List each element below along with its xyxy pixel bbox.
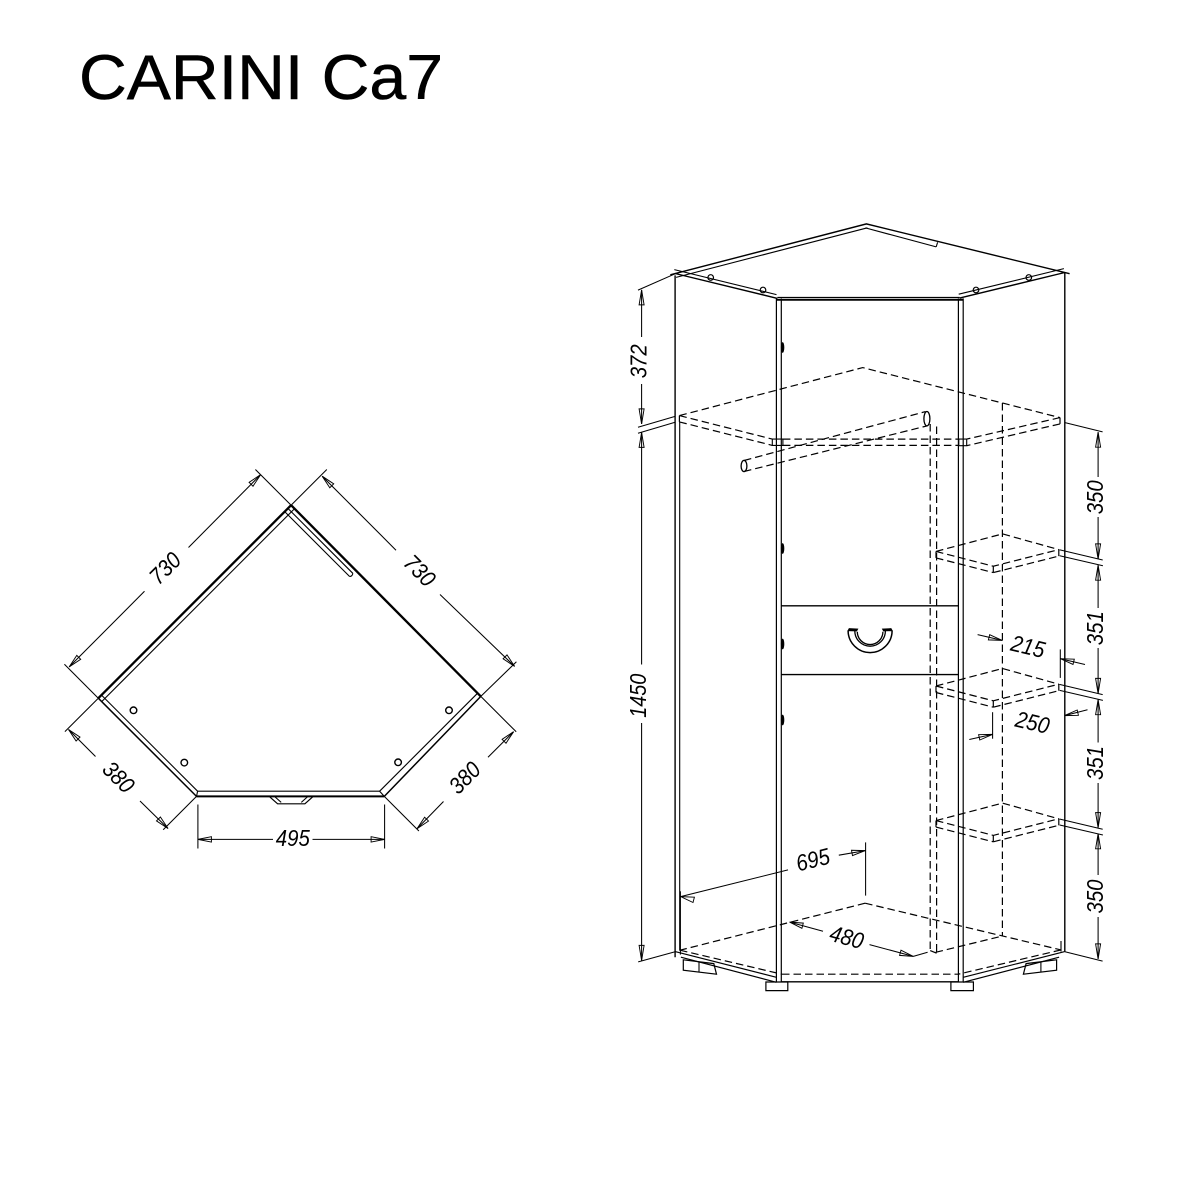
svg-text:350: 350 bbox=[1082, 879, 1108, 913]
svg-text:350: 350 bbox=[1082, 480, 1108, 514]
svg-text:372: 372 bbox=[625, 344, 651, 378]
svg-text:CARINI Ca7: CARINI Ca7 bbox=[79, 43, 443, 113]
svg-text:1450: 1450 bbox=[625, 674, 651, 718]
svg-text:495: 495 bbox=[276, 825, 310, 851]
svg-text:351: 351 bbox=[1082, 611, 1108, 645]
svg-text:351: 351 bbox=[1082, 746, 1108, 780]
